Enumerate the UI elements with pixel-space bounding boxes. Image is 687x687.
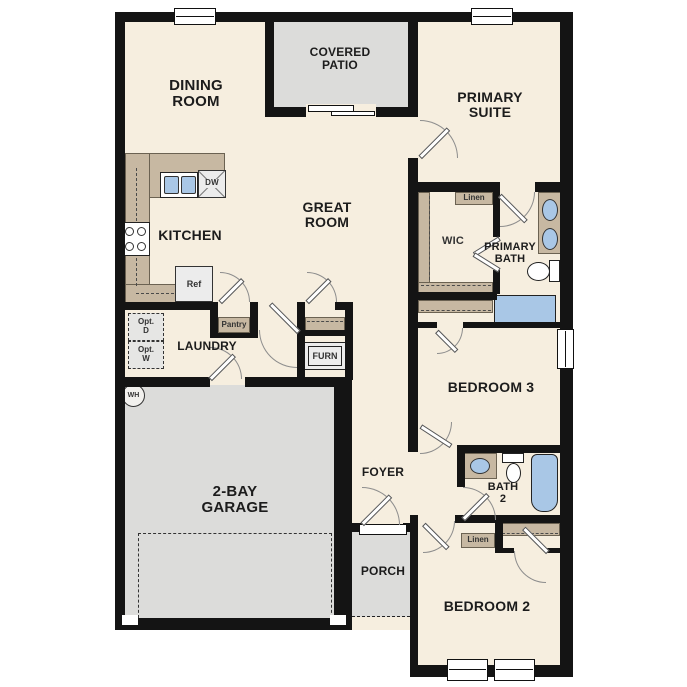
window-mullion (496, 669, 533, 670)
wall (497, 548, 514, 553)
window-mullion (449, 669, 486, 670)
room-label-bath2: BATH2 (480, 482, 526, 505)
primary-tub (494, 295, 556, 324)
room-label-laundry: LAUNDRY (162, 340, 252, 353)
closet-shelf-dash (307, 321, 343, 322)
burner (125, 242, 134, 251)
room-label-primary-suite: PRIMARYSUITE (440, 90, 540, 119)
room-label-garage: 2-BAYGARAGE (185, 484, 285, 516)
bath2-tub (531, 454, 558, 512)
linen-closet-primary: Linen (455, 192, 493, 205)
room-label-covered-patio: COVEREDPATIO (290, 46, 390, 71)
opt-dryer-label: Opt.D (138, 318, 154, 336)
wic-shelf-dash (421, 285, 491, 286)
coat-closet-shelf (305, 317, 345, 331)
furnace-unit-inner: FURN (308, 346, 342, 366)
wall (265, 12, 274, 117)
window-mullion (565, 331, 566, 367)
room-label-dining: DININGROOM (146, 78, 246, 110)
room-label-bedroom3: BEDROOM 3 (441, 380, 541, 395)
wall (410, 665, 573, 677)
wall (408, 322, 437, 328)
wall (457, 445, 560, 453)
wall (115, 618, 352, 630)
wall (297, 330, 353, 336)
sink-basin-right (181, 176, 196, 194)
floor-plan: DW Ref Pantry Linen FURN Opt.D Opt.W WH (0, 0, 687, 687)
room-label-kitchen: KITCHEN (145, 228, 235, 243)
primary-toilet-tank (549, 260, 560, 282)
porch-edge-dash (352, 616, 410, 617)
patio-sliding-door (331, 111, 375, 116)
dishwasher-label: DW (198, 179, 226, 188)
water-heater: WH (122, 384, 145, 407)
wall (335, 302, 352, 310)
window-mullion (473, 16, 511, 17)
primary-sink-2 (542, 228, 558, 250)
room-label-porch: PORCH (353, 565, 413, 578)
room-label-wic: WIC (435, 236, 471, 248)
linen-label: Linen (463, 194, 484, 203)
opt-washer-label: Opt.W (138, 346, 154, 364)
room-label-great-room: GREATROOM (277, 200, 377, 229)
burner (125, 227, 134, 236)
garage-wall-notch (330, 615, 346, 625)
wall (410, 515, 418, 665)
water-heater-label: WH (128, 392, 140, 399)
window (447, 659, 488, 681)
bedroom3-closet-shelf (418, 300, 493, 313)
wall (535, 182, 573, 192)
wall (463, 322, 560, 328)
room-label-primary-bath: PRIMARYBATH (479, 242, 541, 265)
front-door-threshold (359, 524, 407, 535)
garage-wall-notch (122, 615, 138, 625)
wall (408, 292, 497, 300)
garage-door-outline (138, 533, 332, 618)
wall (457, 447, 465, 487)
wic-shelf-dash (429, 196, 430, 290)
sink-basin-left (164, 176, 179, 194)
opt-washer: Opt.W (128, 341, 164, 369)
wall (408, 182, 500, 192)
wall (265, 107, 306, 117)
window (494, 659, 535, 681)
wall (408, 182, 418, 452)
wall (345, 302, 353, 380)
bath2-toilet-bowl (506, 463, 521, 483)
room-label-bedroom2: BEDROOM 2 (437, 599, 537, 614)
wall (115, 302, 218, 310)
refrigerator-label: Ref (187, 279, 202, 289)
counter-edge-dash (136, 293, 174, 294)
linen-closet-hall: Linen (461, 533, 495, 548)
bedroom3-closet-dash (421, 310, 491, 311)
primary-sink-1 (542, 199, 558, 221)
burner (137, 242, 146, 251)
wall (245, 377, 352, 387)
linen-label: Linen (467, 536, 488, 545)
opt-dryer: Opt.D (128, 313, 164, 341)
wall (115, 12, 125, 630)
bath2-toilet-tank (502, 453, 524, 463)
wall (115, 377, 210, 387)
bath2-sink (470, 458, 490, 474)
wall (210, 333, 258, 338)
refrigerator: Ref (175, 266, 213, 302)
room-label-foyer: FOYER (348, 466, 418, 479)
wall (493, 270, 500, 294)
wall (376, 107, 418, 117)
wall (408, 12, 418, 117)
pantry-label: Pantry (222, 321, 247, 330)
wall (297, 302, 305, 380)
pantry-shelf: Pantry (218, 317, 250, 333)
furnace-label: FURN (313, 351, 338, 361)
wall (334, 377, 352, 630)
window-mullion (176, 16, 214, 17)
